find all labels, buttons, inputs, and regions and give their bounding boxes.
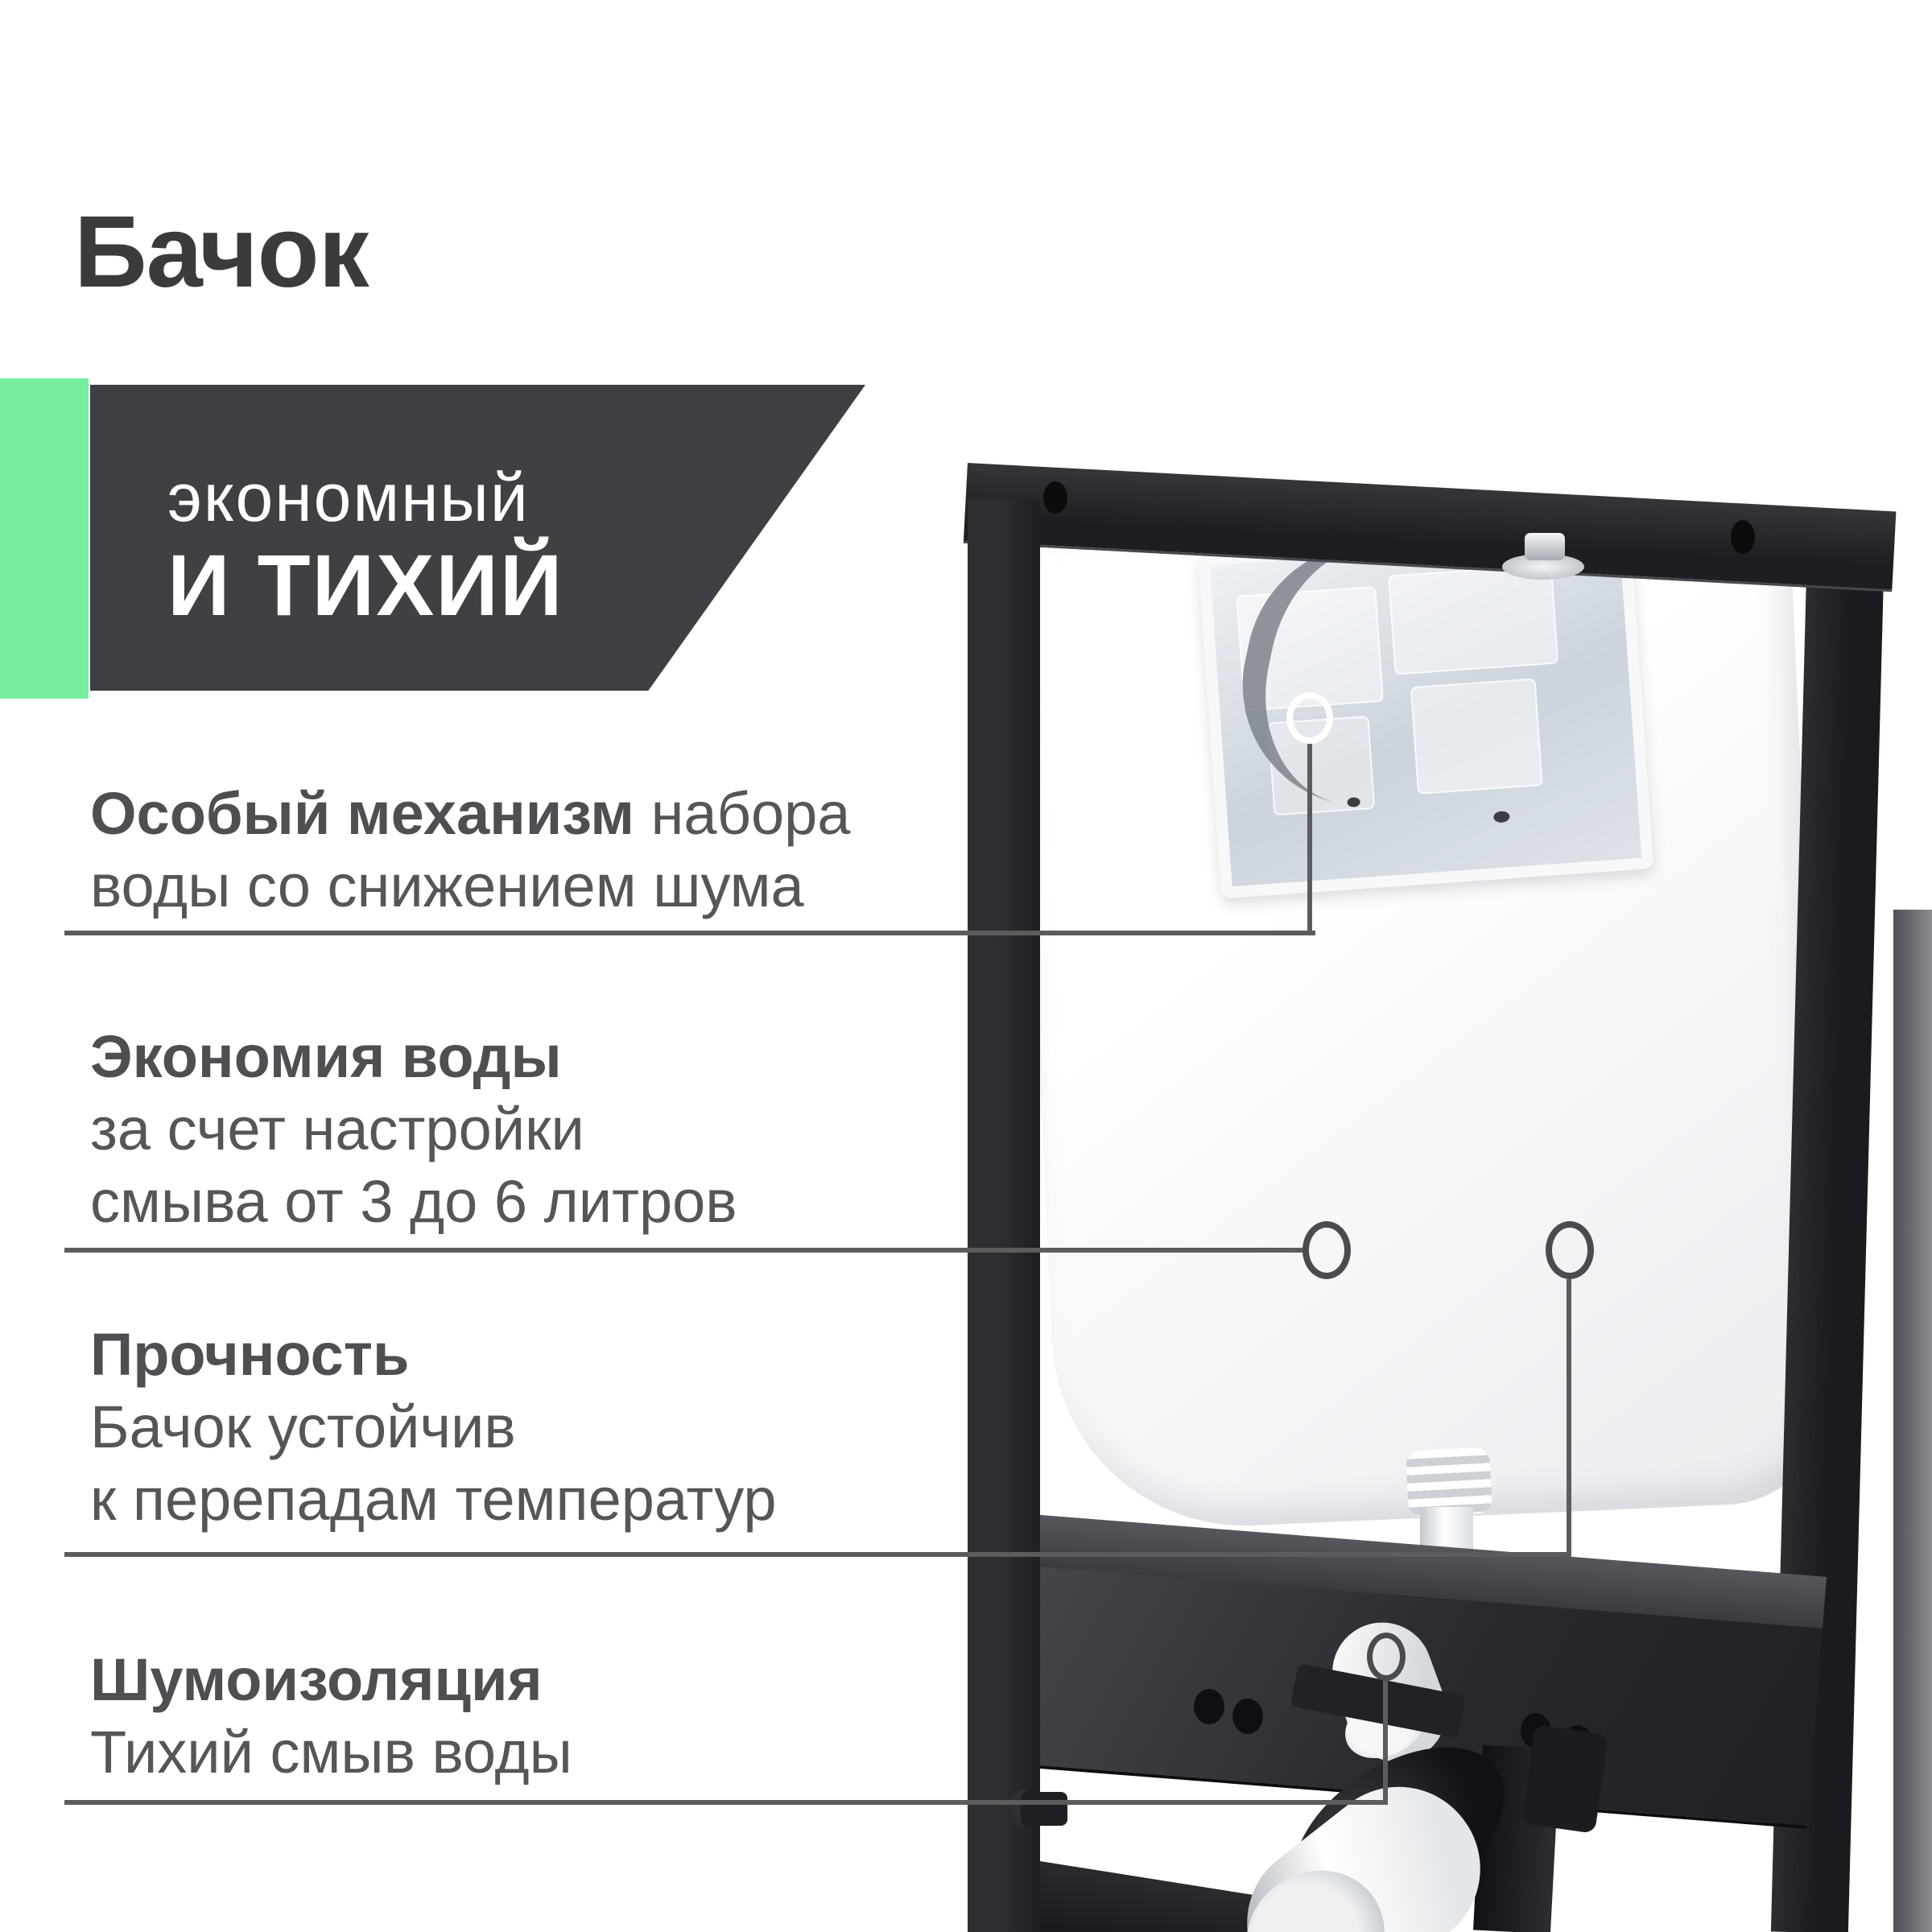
callout-line-4-vertical	[1383, 1679, 1388, 1805]
feature-heading: Особый механизм	[90, 780, 634, 847]
callout-circle-4	[1367, 1633, 1406, 1681]
feature-heading: Прочность	[90, 1321, 410, 1388]
feature-durability: Прочность Бачок устойчив к перепадам тем…	[90, 1319, 1016, 1536]
feature-body: Бачок устойчив к перепадам температур	[90, 1393, 777, 1533]
pipe-bracket	[1521, 1724, 1608, 1834]
banner-line1: экономный	[167, 459, 530, 537]
adjustment-screw-body	[1021, 1792, 1067, 1826]
callout-line-3-vertical	[1567, 1279, 1571, 1557]
fill-hose	[1220, 525, 1441, 814]
feature-heading: Экономия воды	[90, 1023, 562, 1090]
frame-right-edge	[1893, 910, 1932, 1932]
callout-line-1-horizontal	[64, 931, 1315, 935]
feature-heading: Шумоизоляция	[90, 1646, 543, 1713]
inlet-fitting-nut	[1525, 533, 1565, 560]
callout-line-4-horizontal	[64, 1800, 1388, 1805]
page-title: Бачок	[74, 193, 369, 310]
window-detail	[1410, 678, 1543, 795]
feature-water-saving: Экономия воды за счет настройки смыва от…	[90, 1021, 1016, 1238]
window-detail	[1493, 811, 1510, 823]
callout-circle-2	[1302, 1221, 1351, 1279]
callout-circle-3	[1546, 1221, 1594, 1279]
accent-bar	[0, 378, 89, 699]
product-infographic: Бачок экономный и тихий Особый механизм …	[0, 0, 1932, 1932]
feature-body: за счет настройки смыва от 3 до 6 литров	[90, 1096, 737, 1235]
banner-line2: и тихий	[167, 535, 564, 635]
callout-line-1-vertical	[1307, 739, 1312, 935]
callout-line-3-horizontal	[64, 1552, 1571, 1557]
feature-noise-insulation: Шумоизоляция Тихий смыв воды	[90, 1644, 1016, 1789]
feature-special-mechanism: Особый механизм набора воды со снижением…	[90, 778, 1016, 923]
plate-hole	[1232, 1699, 1263, 1734]
callout-circle-1	[1286, 692, 1333, 744]
feature-body: Тихий смыв воды	[90, 1719, 572, 1785]
mounting-hole-right	[1731, 520, 1755, 554]
inspection-window	[1198, 525, 1654, 898]
callout-line-2-horizontal	[64, 1248, 1302, 1253]
mounting-hole-left	[1043, 481, 1067, 514]
plate-hole	[1194, 1689, 1224, 1724]
